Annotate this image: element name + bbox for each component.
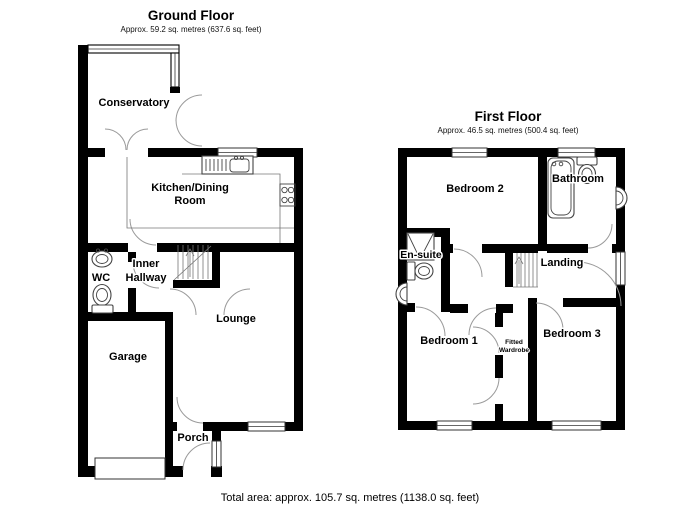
- basin: [92, 251, 112, 267]
- toilet-bowl: [415, 263, 433, 279]
- basin: [396, 283, 407, 305]
- wall-segment: [495, 404, 503, 421]
- room-label-bedroom3: Bedroom 3: [543, 328, 600, 340]
- wall-segment: [528, 298, 537, 421]
- floor-plan-page: Ground Floor Approx. 59.2 sq. metres (63…: [0, 0, 700, 509]
- ground-floor-plan: Ground Floor Approx. 59.2 sq. metres (63…: [78, 8, 303, 479]
- garage-door: [95, 458, 165, 479]
- room-label-porch: Porch: [177, 432, 208, 444]
- wall-segment: [612, 244, 616, 253]
- door-arc: [536, 303, 563, 330]
- wall-segment: [495, 355, 503, 378]
- room-label-inner-line2: Hallway: [126, 272, 168, 284]
- door-arc: [127, 129, 148, 150]
- total-area-text: Total area: approx. 105.7 sq. metres (11…: [221, 492, 479, 504]
- wall-segment: [78, 45, 88, 477]
- wall-segment: [398, 148, 452, 157]
- room-label-conservatory: Conservatory: [99, 97, 171, 109]
- bedroom3-window: [552, 421, 601, 430]
- porch-window: [212, 441, 221, 467]
- room-label-lounge: Lounge: [216, 313, 256, 325]
- room-label-bedroom2: Bedroom 2: [446, 183, 503, 195]
- wall-segment: [547, 244, 588, 253]
- hob-outline: [280, 184, 295, 206]
- hob-icon: [280, 184, 295, 206]
- first-floor-stairs-icon: [513, 253, 538, 287]
- burner: [288, 187, 293, 192]
- bathroom-window: [558, 148, 595, 157]
- first-floor-plan: First Floor Approx. 46.5 sq. metres (500…: [396, 109, 627, 430]
- wall-segment: [441, 244, 453, 253]
- bathroom-basin-icon: [616, 187, 627, 209]
- wall-segment: [78, 148, 105, 157]
- room-label-inner-line1: Inner: [133, 258, 161, 270]
- cistern: [92, 305, 113, 313]
- wall-segment: [472, 421, 552, 430]
- landing-window: [616, 252, 625, 285]
- door-arc: [105, 129, 126, 150]
- door-arc: [130, 219, 156, 245]
- kitchen-sink: [202, 156, 253, 174]
- door-arc: [177, 397, 203, 423]
- bath-icon: [548, 158, 574, 218]
- burner: [282, 187, 287, 192]
- burner: [288, 197, 293, 202]
- wall-segment: [563, 298, 616, 307]
- wall-segment: [495, 313, 503, 327]
- first-floor-subtitle: Approx. 46.5 sq. metres (500.4 sq. feet): [438, 126, 579, 135]
- wall-segment: [157, 243, 303, 252]
- room-label-wc: WC: [92, 272, 110, 284]
- wall-segment: [595, 148, 625, 157]
- bedroom2-window: [452, 148, 487, 157]
- wc-toilet-icon: [92, 285, 113, 314]
- door-arc: [416, 307, 445, 336]
- door-arc: [176, 95, 202, 121]
- door-arc: [176, 120, 202, 146]
- room-label-kitchen-line2: Room: [174, 195, 205, 207]
- room-label-ensuite: En-suite: [400, 249, 442, 261]
- wall-segment: [538, 157, 547, 251]
- room-label-landing: Landing: [541, 257, 584, 269]
- burner: [282, 197, 287, 202]
- door-arc: [224, 289, 250, 315]
- room-label-wardrobe-line1: Fitted: [505, 339, 523, 346]
- first-floor-walls: [398, 148, 625, 430]
- floor-plan-drawing: Ground Floor Approx. 59.2 sq. metres (63…: [0, 0, 700, 509]
- wall-segment: [203, 422, 248, 431]
- room-label-bathroom: Bathroom: [552, 173, 604, 185]
- conservatory-glazed-walls: [88, 45, 179, 87]
- wall-segment: [601, 421, 625, 430]
- room-label-wardrobe-line2: Wardrobe: [499, 347, 529, 354]
- wall-segment: [398, 421, 437, 430]
- wall-segment: [482, 244, 505, 253]
- ground-floor-subtitle: Approx. 59.2 sq. metres (637.6 sq. feet): [121, 25, 262, 34]
- wall-segment: [505, 244, 538, 253]
- wall-segment: [78, 312, 173, 321]
- ensuite-toilet-icon: [407, 262, 433, 280]
- door-arc: [588, 224, 612, 248]
- wall-segment: [487, 148, 558, 157]
- room-label-bedroom1: Bedroom 1: [420, 335, 477, 347]
- door-arc: [183, 443, 210, 470]
- wall-segment: [285, 422, 303, 431]
- cistern: [577, 157, 597, 165]
- room-label-garage: Garage: [109, 351, 147, 363]
- basin: [616, 187, 627, 209]
- wall-segment: [173, 422, 177, 431]
- wall-segment: [450, 304, 468, 313]
- first-floor-title: First Floor: [475, 109, 542, 124]
- toilet-bowl: [93, 285, 111, 306]
- wall-segment: [128, 288, 136, 312]
- wall-segment: [505, 253, 513, 287]
- wall-segment: [165, 312, 173, 477]
- wall-segment: [170, 87, 180, 93]
- lounge-window: [248, 422, 285, 431]
- ground-floor-title: Ground Floor: [148, 8, 235, 23]
- wall-segment: [173, 280, 220, 288]
- door-arc: [469, 308, 496, 335]
- room-label-kitchen-line1: Kitchen/Dining: [151, 182, 229, 194]
- door-arc: [454, 249, 482, 277]
- bath-outer: [548, 158, 574, 218]
- wall-segment: [496, 304, 513, 313]
- cistern: [407, 262, 415, 280]
- bedroom1-window: [437, 421, 472, 430]
- ensuite-basin-icon: [396, 283, 407, 305]
- door-arc: [473, 378, 499, 404]
- door-arc: [170, 289, 196, 315]
- wall-segment: [211, 466, 222, 477]
